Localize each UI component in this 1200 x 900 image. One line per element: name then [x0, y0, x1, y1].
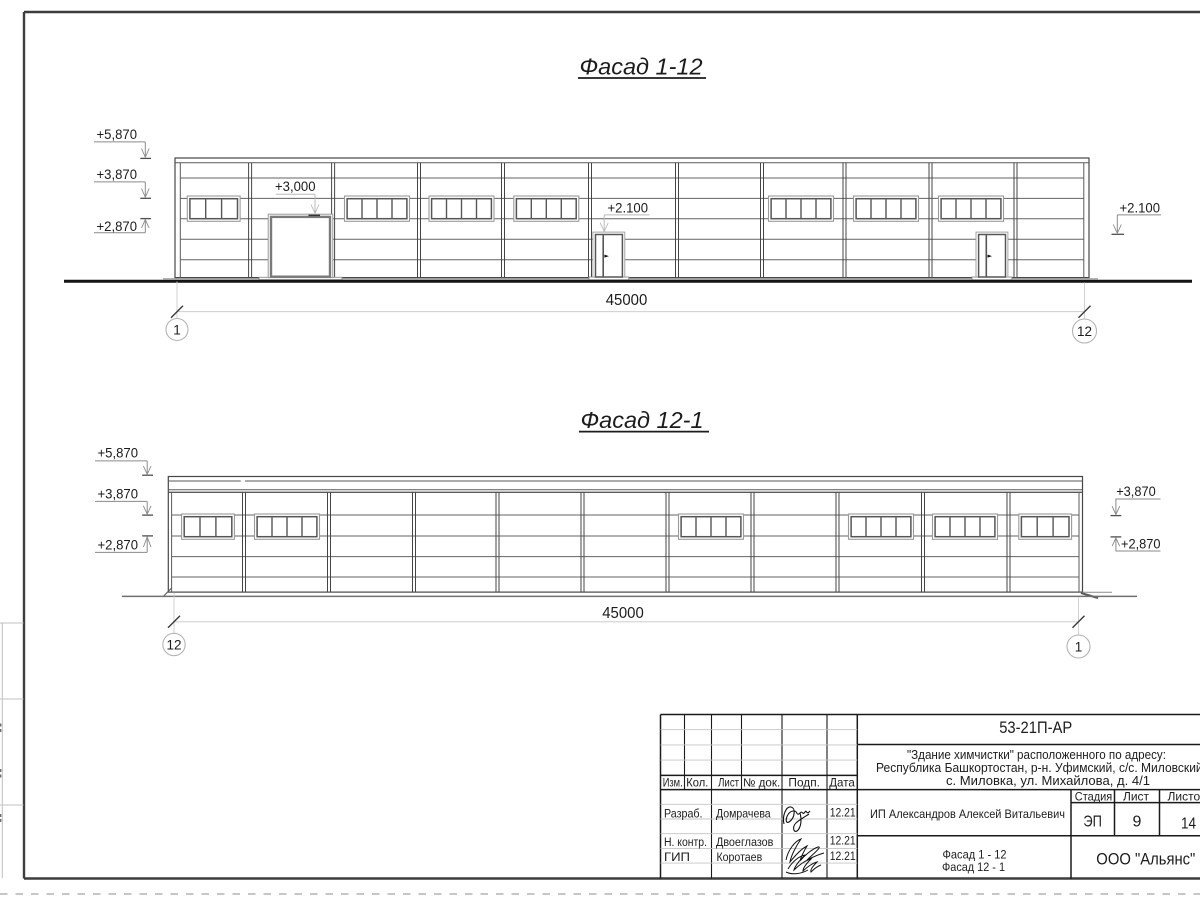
svg-text:Дата: Дата — [829, 775, 855, 789]
svg-text:Двоеглазов: Двоеглазов — [716, 835, 773, 849]
svg-text:12.21: 12.21 — [830, 849, 856, 863]
svg-text:Домрачева: Домрачева — [716, 807, 771, 821]
svg-text:+2.100: +2.100 — [1120, 200, 1161, 215]
svg-text:Разраб.: Разраб. — [664, 807, 703, 821]
svg-text:12.21: 12.21 — [830, 806, 856, 820]
svg-text:Кол.: Кол. — [686, 775, 708, 789]
svg-text:Стадия: Стадия — [1075, 790, 1113, 804]
svg-text:1: 1 — [1075, 639, 1083, 654]
svg-text:+3,870: +3,870 — [97, 167, 138, 182]
svg-text:14: 14 — [1181, 816, 1196, 833]
svg-text:Лист: Лист — [1123, 790, 1149, 804]
svg-text:Коротаев: Коротаев — [717, 850, 763, 864]
svg-text:ГИП: ГИП — [664, 850, 690, 864]
svg-text:53-21П-АР: 53-21П-АР — [999, 719, 1072, 737]
svg-text:с. Миловка, ул. Михайлова, д.: с. Миловка, ул. Михайлова, д. 4/1 — [946, 774, 1150, 788]
svg-text:+3,000: +3,000 — [275, 179, 316, 194]
svg-text:45000: 45000 — [602, 605, 644, 622]
svg-text:12: 12 — [166, 637, 181, 652]
svg-text:+2.100: +2.100 — [608, 200, 649, 215]
svg-text:12: 12 — [1077, 324, 1092, 339]
svg-text:+2,870: +2,870 — [98, 537, 139, 552]
svg-text:Н. контр.: Н. контр. — [664, 835, 707, 849]
svg-text:12.21: 12.21 — [830, 834, 856, 848]
svg-text:ЭП: ЭП — [1083, 814, 1102, 831]
svg-text:9: 9 — [1133, 814, 1142, 831]
svg-text:Листов: Листов — [1168, 790, 1200, 804]
svg-text:Подп.: Подп. — [788, 775, 820, 789]
svg-text:Фасад 12-1: Фасад 12-1 — [580, 407, 703, 433]
svg-text:+3,870: +3,870 — [1116, 484, 1156, 499]
svg-text:Изм.: Изм. — [663, 775, 683, 789]
svg-text:+5,870: +5,870 — [97, 127, 138, 142]
svg-text:1: 1 — [173, 322, 181, 337]
svg-text:Фасад 1-12: Фасад 1-12 — [579, 54, 702, 80]
svg-text:+2,870: +2,870 — [97, 219, 138, 234]
svg-text:Лист: Лист — [718, 775, 739, 789]
svg-text:+2,870: +2,870 — [1121, 537, 1161, 552]
svg-text:"Здание химчистки" расположенн: "Здание химчистки" расположенного по адр… — [907, 748, 1166, 762]
svg-text:Фасад 12 - 1: Фасад 12 - 1 — [942, 860, 1005, 874]
svg-text:ООО "Альянс": ООО "Альянс" — [1096, 851, 1195, 869]
svg-text:45000: 45000 — [606, 292, 648, 309]
svg-text:ИП Александров Алексей Виталье: ИП Александров Алексей Витальевич — [870, 807, 1065, 821]
svg-text:+3,870: +3,870 — [98, 486, 139, 501]
svg-text:+5,870: +5,870 — [98, 445, 139, 460]
svg-text:Республика Башкортостан, р-н.: Республика Башкортостан, р-н. Уфимский, … — [876, 761, 1200, 775]
svg-text:№ док.: № док. — [743, 775, 780, 789]
